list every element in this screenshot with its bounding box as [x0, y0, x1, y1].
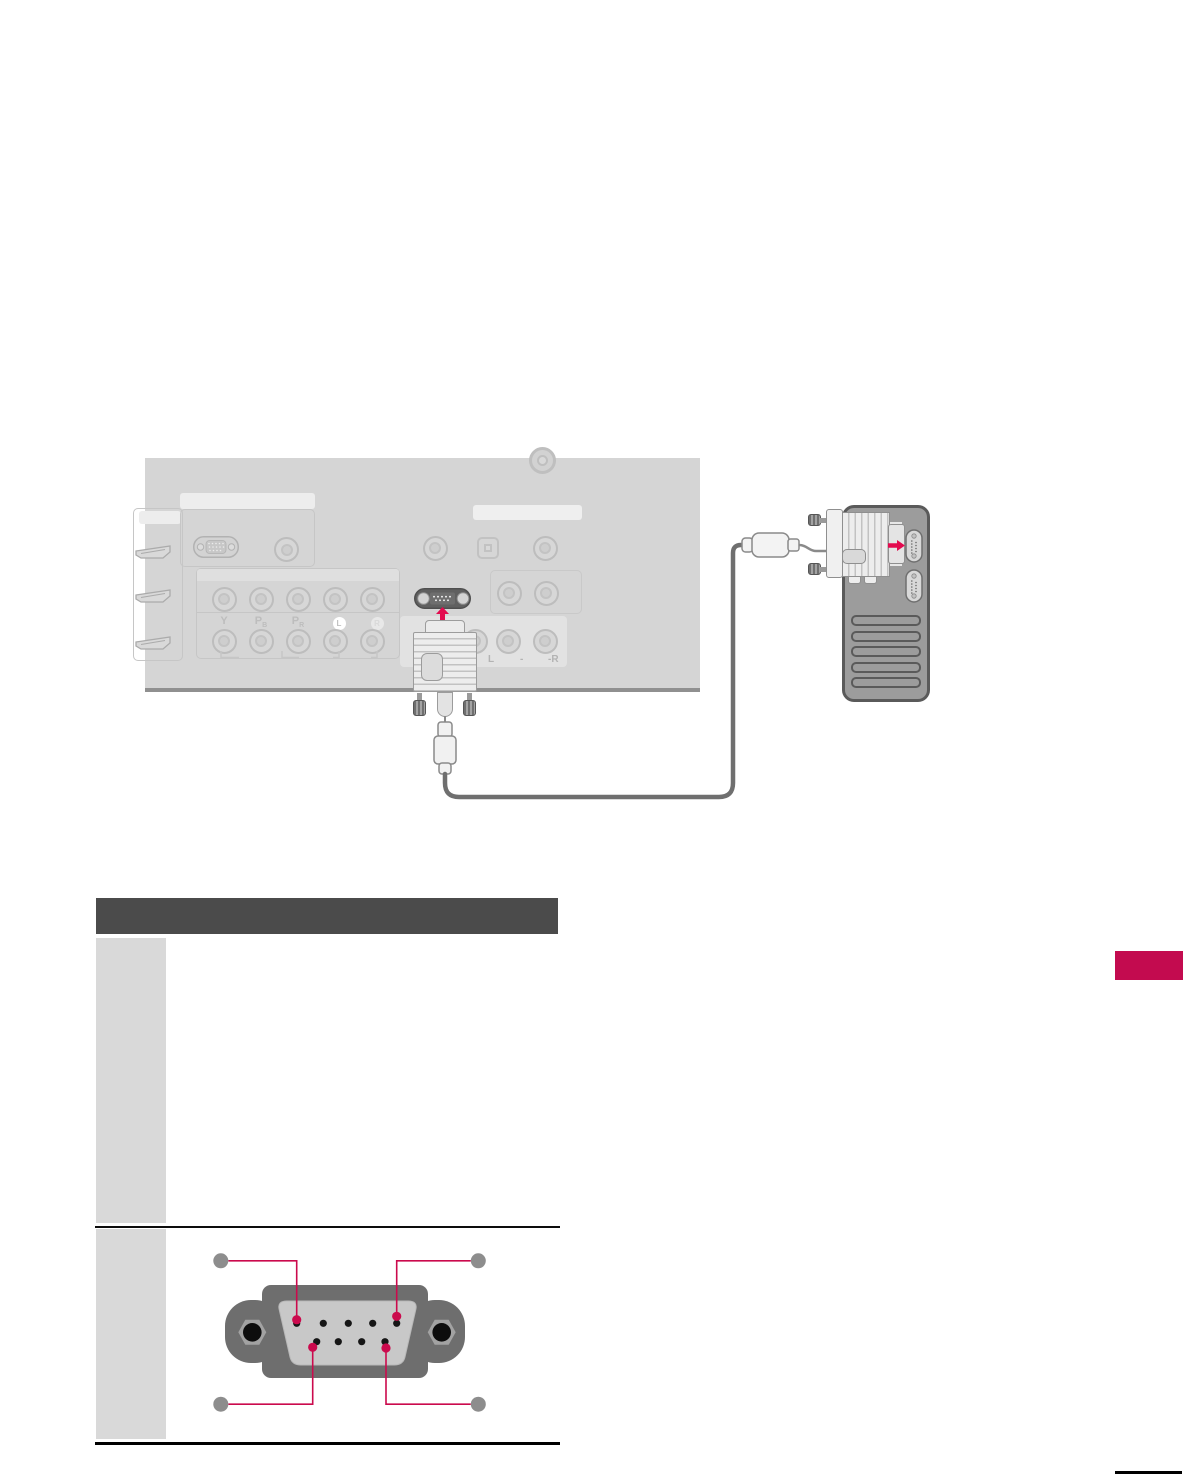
adapter-body	[842, 512, 890, 577]
spec-table-row-divider	[95, 1226, 560, 1228]
chapter-tab	[1115, 951, 1183, 980]
rca-jack-icon	[286, 587, 311, 612]
vent-slot	[851, 646, 921, 657]
av-section-label-strip	[473, 505, 582, 520]
jack-group-brackets	[211, 650, 387, 659]
component-label-pb: PB	[249, 615, 273, 629]
hdmi-port-icon	[135, 588, 172, 604]
adapter-latch	[842, 549, 866, 564]
component-label-strip	[197, 569, 399, 581]
spec-table-header-bar	[96, 898, 558, 934]
rgb-section-box	[180, 509, 315, 567]
antenna-jack-icon	[529, 447, 556, 474]
antenna-jack-center	[537, 455, 548, 466]
component-label-y: Y	[212, 615, 236, 629]
adapter-back	[826, 509, 843, 578]
component-section-box: Y PB PR L R	[196, 568, 400, 659]
adapter-foot	[864, 577, 877, 584]
component-label-pr: PR	[286, 615, 310, 629]
spec-table-row1-label-cell	[96, 938, 166, 1223]
dsub9-pin-diagram	[95, 1229, 560, 1441]
component-row-divider	[197, 612, 399, 613]
vent-slot	[851, 615, 921, 626]
hdmi-port-icon	[135, 635, 172, 651]
manual-page: Y PB PR L R	[0, 0, 1190, 1475]
rgb-audio-jack-icon	[274, 537, 299, 562]
audio-right-badge: R	[371, 617, 384, 630]
vga-port-icon	[193, 536, 239, 558]
page-number-rule	[1115, 1471, 1182, 1474]
connect-right-arrow-icon	[888, 540, 905, 551]
rca-jack-icon	[212, 587, 237, 612]
spec-table-bottom-rule	[95, 1442, 560, 1445]
vent-slot	[851, 677, 921, 688]
rca-jack-icon	[249, 587, 274, 612]
serial-port-icon	[905, 569, 923, 603]
rgb-section-label-strip	[180, 493, 315, 509]
vent-slot	[851, 631, 921, 642]
serial-port-icon	[905, 529, 923, 563]
adapter-foot	[848, 577, 861, 584]
hdmi-section-label-strip	[139, 511, 181, 524]
cable-molded-plug	[742, 533, 799, 557]
audio-left-badge: L	[333, 617, 346, 630]
vent-slot	[851, 662, 921, 673]
hdmi-port-icon	[135, 544, 172, 560]
rca-jack-icon	[360, 587, 385, 612]
rca-jack-icon	[323, 587, 348, 612]
dsub9-connector	[225, 1285, 465, 1378]
rs232c-cable	[400, 530, 840, 810]
